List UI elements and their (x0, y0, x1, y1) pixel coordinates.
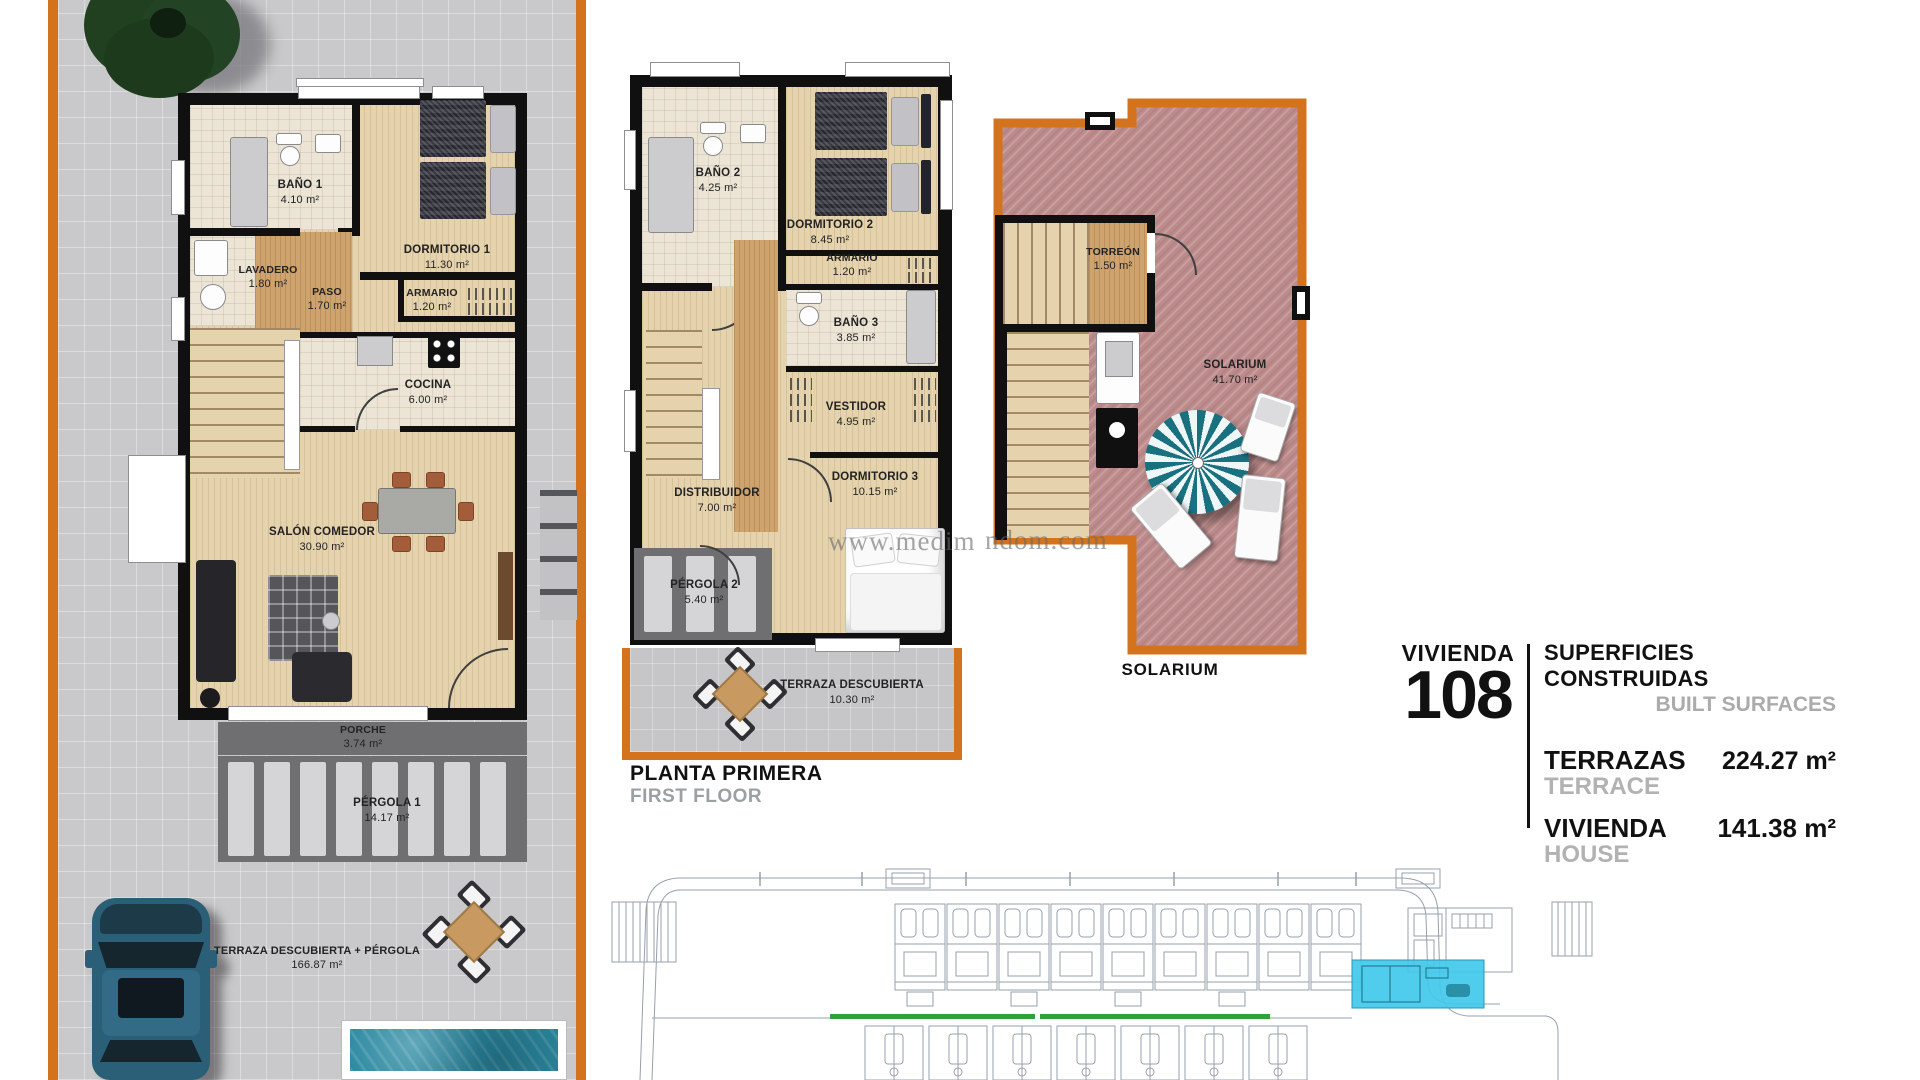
room-bano1 (190, 105, 352, 230)
surfaces-title: SUPERFICIES CONSTRUIDAS (1544, 640, 1836, 692)
dining-table-icon (378, 488, 456, 534)
unit-number: 108 (1386, 656, 1530, 734)
wall (995, 332, 1007, 540)
washer-icon (194, 240, 228, 276)
plan-title: PLANTA PRIMERA (630, 762, 823, 786)
room-label-cocina: COCINA6.00 m² (405, 378, 452, 407)
window-block (1085, 112, 1115, 130)
window (650, 62, 740, 77)
row-label-en: TERRACE (1544, 773, 1836, 801)
sink-icon (315, 134, 341, 153)
window (298, 86, 420, 99)
wall (402, 316, 515, 322)
torreon-stairs (1003, 223, 1089, 324)
solarium-caption: SOLARIUM (1100, 660, 1240, 680)
basin-icon (200, 284, 226, 310)
chair-icon (392, 536, 411, 552)
chair-icon (426, 472, 445, 488)
bed-icon (815, 92, 933, 150)
plot-border-left (48, 0, 58, 1080)
toilet-icon (703, 136, 723, 156)
green-boundary-line (830, 1014, 1270, 1019)
closet-hangers-icon (908, 258, 936, 269)
row-label-en: HOUSE (1544, 841, 1836, 869)
fridge-icon (357, 336, 393, 366)
bay-window (128, 455, 186, 563)
outdoor-table-set-icon (430, 888, 518, 976)
room-label-armario2: ARMARIO1.20 m² (826, 252, 878, 280)
highlighted-unit (1352, 960, 1484, 1008)
wall (400, 426, 515, 432)
row-label: VIVIENDA (1544, 813, 1667, 844)
wall (190, 228, 300, 236)
window-block (1292, 286, 1310, 320)
closet-hangers-icon (790, 378, 812, 390)
chair-icon (426, 536, 445, 552)
room-label-armario1: ARMARIO1.20 m² (406, 287, 458, 315)
closet-hangers-icon (914, 410, 936, 422)
wall (786, 366, 938, 372)
divider (1527, 644, 1530, 828)
bed-icon (815, 158, 933, 216)
row-label: TERRAZAS (1544, 745, 1686, 776)
chair-icon (392, 472, 411, 488)
wall (352, 105, 360, 232)
room-label-porche: PORCHE3.74 m² (340, 724, 386, 752)
room-label-terraza1: TERRAZA DESCUBIERTA10.30 m² (780, 678, 924, 707)
room-label-dormitorio3: DORMITORIO 310.15 m² (832, 470, 919, 499)
room-label-pergola1: PÉRGOLA 114.17 m² (353, 796, 421, 825)
plan-title-en: FIRST FLOOR (630, 786, 762, 808)
closet-hangers-icon (468, 288, 512, 300)
row-value: 224.27 m² (1722, 747, 1836, 776)
stairs (1007, 332, 1089, 538)
hob-icon (428, 334, 460, 368)
window (940, 100, 953, 210)
storage-unit-icon (1096, 408, 1138, 468)
closet-hangers-icon (914, 378, 936, 390)
wall (810, 452, 938, 458)
stair-well (284, 340, 300, 470)
window (432, 86, 484, 99)
chair-icon (458, 502, 474, 521)
room-label-vestidor: VESTIDOR4.95 m² (826, 400, 886, 429)
room-label-solarium: SOLARIUM41.70 m² (1204, 358, 1267, 387)
closet-hangers-icon (908, 272, 936, 283)
window (845, 62, 950, 77)
window (815, 638, 900, 652)
toilet-tank-icon (700, 122, 726, 134)
shower-icon (648, 137, 694, 233)
side-ball-icon (322, 612, 340, 630)
sofa-icon (196, 560, 236, 682)
watermark: ndom.com (985, 525, 1108, 556)
window (171, 160, 185, 215)
bathtub-icon (906, 290, 936, 364)
toilet-tank-icon (796, 292, 822, 304)
surfaces-table: SUPERFICIES CONSTRUIDAS BUILT SURFACES T… (1544, 640, 1836, 869)
closet-hangers-icon (468, 303, 512, 315)
wall (778, 87, 786, 287)
bed-icon (420, 162, 517, 219)
room-label-dormitorio2: DORMITORIO 28.45 m² (787, 218, 874, 247)
room-label-distribuidor: DISTRIBUIDOR7.00 m² (674, 486, 759, 515)
outdoor-table-set-icon (700, 654, 780, 734)
room-label-bano3: BAÑO 33.85 m² (834, 316, 879, 345)
sun-lounger-icon (1234, 474, 1287, 562)
room-label-bano2: BAÑO 24.25 m² (696, 166, 741, 195)
window (624, 130, 636, 190)
stairs (646, 330, 702, 478)
toilet-icon (799, 306, 819, 326)
wall (300, 332, 515, 338)
door-gap (1147, 233, 1155, 273)
hatch-right (1552, 902, 1592, 956)
plot-border-right (576, 0, 586, 1080)
room-label-torreon: TORREÓN1.50 m² (1086, 246, 1140, 274)
exterior-stairs (540, 490, 577, 620)
armchair-icon (292, 652, 352, 702)
closet-hangers-icon (790, 394, 812, 406)
floorplan-sheet: BAÑO 14.10 m² LAVADERO1.80 m² PASO1.70 m… (0, 0, 1920, 1080)
pouf-icon (200, 688, 220, 708)
room-label-bano1: BAÑO 14.10 m² (278, 178, 323, 207)
wall (360, 272, 515, 280)
chair-icon (362, 502, 378, 521)
pool (341, 1020, 567, 1080)
site-plan-overview (600, 868, 1600, 1080)
toilet-icon (280, 146, 300, 166)
room-label-dormitorio1: DORMITORIO 111.30 m² (404, 243, 491, 272)
stair-well (702, 388, 720, 480)
bed-icon (420, 100, 517, 157)
row-value: 141.38 m² (1717, 813, 1836, 844)
surfaces-title-en: BUILT SURFACES (1544, 693, 1836, 717)
closet-hangers-icon (790, 410, 812, 422)
sideboard-icon (498, 552, 513, 640)
closet-hangers-icon (914, 394, 936, 406)
window (228, 706, 428, 721)
shower-icon (230, 137, 268, 227)
window (624, 390, 636, 452)
sink-icon (740, 124, 766, 143)
toilet-tank-icon (276, 133, 302, 145)
sink-unit-icon (1096, 332, 1140, 404)
watermark: www.medim (828, 526, 975, 557)
room-label-terraza-pergola: TERRAZA DESCUBIERTA + PÉRGOLA166.87 m² (214, 944, 420, 972)
room-label-lavadero: LAVADERO1.80 m² (239, 264, 298, 292)
room-label-salon: SALÓN COMEDOR30.90 m² (269, 525, 375, 554)
room-label-pergola2: PÉRGOLA 25.40 m² (670, 578, 738, 607)
room-label-paso: PASO1.70 m² (308, 286, 347, 314)
window (171, 297, 185, 341)
car-icon (92, 898, 210, 1080)
wall (642, 283, 712, 291)
wall (300, 426, 355, 432)
